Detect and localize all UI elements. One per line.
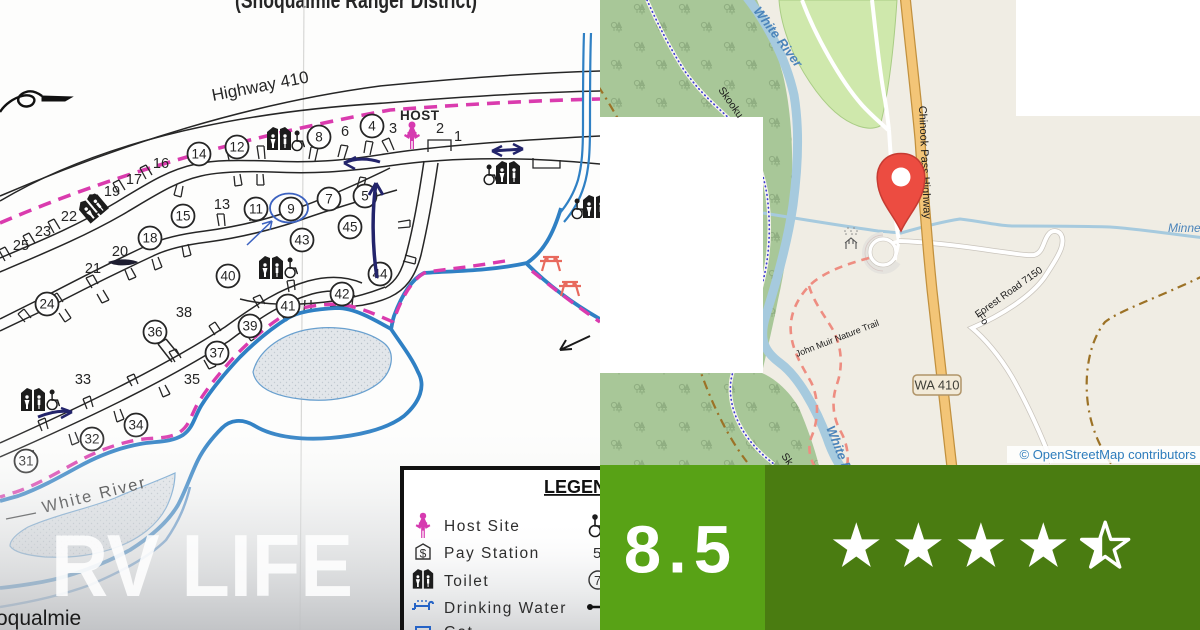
svg-text:22: 22 bbox=[61, 209, 77, 225]
svg-text:WA 410: WA 410 bbox=[914, 378, 959, 393]
svg-text:35: 35 bbox=[184, 372, 200, 388]
svg-text:6: 6 bbox=[341, 124, 349, 140]
svg-text:13: 13 bbox=[214, 197, 230, 213]
svg-text:40: 40 bbox=[220, 269, 235, 284]
svg-text:16: 16 bbox=[153, 156, 169, 172]
svg-text:23: 23 bbox=[35, 224, 51, 240]
svg-text:39: 39 bbox=[242, 319, 257, 334]
svg-text:RV LIFE: RV LIFE bbox=[51, 516, 353, 615]
svg-text:8: 8 bbox=[315, 130, 323, 145]
svg-text:20: 20 bbox=[112, 244, 128, 260]
svg-text:Pay Station: Pay Station bbox=[444, 545, 540, 562]
svg-text:9: 9 bbox=[287, 202, 295, 217]
svg-text:14: 14 bbox=[191, 147, 207, 162]
svg-text:33: 33 bbox=[75, 372, 91, 388]
svg-text:45: 45 bbox=[342, 220, 357, 235]
svg-text:© OpenStreetMap contributors: © OpenStreetMap contributors bbox=[1020, 447, 1197, 462]
svg-text:Toilet: Toilet bbox=[444, 573, 489, 590]
svg-text:38: 38 bbox=[176, 305, 192, 321]
svg-text:41: 41 bbox=[280, 299, 295, 314]
svg-text:42: 42 bbox=[334, 287, 349, 302]
svg-text:(Snoqualmie Ranger District): (Snoqualmie Ranger District) bbox=[235, 0, 477, 13]
svg-text:5: 5 bbox=[361, 189, 369, 204]
svg-text:18: 18 bbox=[142, 231, 157, 246]
svg-text:11: 11 bbox=[249, 202, 263, 217]
svg-text:17: 17 bbox=[126, 172, 142, 188]
svg-text:7: 7 bbox=[325, 192, 333, 207]
svg-text:15: 15 bbox=[175, 209, 190, 224]
svg-text:Gat: Gat bbox=[444, 624, 473, 630]
svg-text:Minneh: Minneh bbox=[1168, 221, 1200, 235]
svg-text:21: 21 bbox=[85, 261, 101, 277]
svg-text:19: 19 bbox=[104, 184, 120, 200]
svg-text:12: 12 bbox=[229, 140, 244, 155]
svg-text:36: 36 bbox=[147, 325, 162, 340]
svg-text:Drinking Water: Drinking Water bbox=[444, 600, 567, 617]
svg-text:$: $ bbox=[420, 547, 427, 561]
svg-text:3: 3 bbox=[389, 121, 397, 137]
svg-text:37: 37 bbox=[209, 346, 224, 361]
svg-text:HOST: HOST bbox=[400, 108, 440, 123]
svg-text:1: 1 bbox=[454, 129, 462, 145]
svg-text:43: 43 bbox=[294, 233, 309, 248]
svg-text:Host Site: Host Site bbox=[444, 518, 520, 535]
svg-text:4: 4 bbox=[368, 119, 376, 134]
svg-text:24: 24 bbox=[39, 297, 55, 312]
svg-text:8.5: 8.5 bbox=[624, 513, 738, 588]
svg-text:2: 2 bbox=[436, 121, 444, 137]
svg-text:25: 25 bbox=[13, 238, 29, 254]
